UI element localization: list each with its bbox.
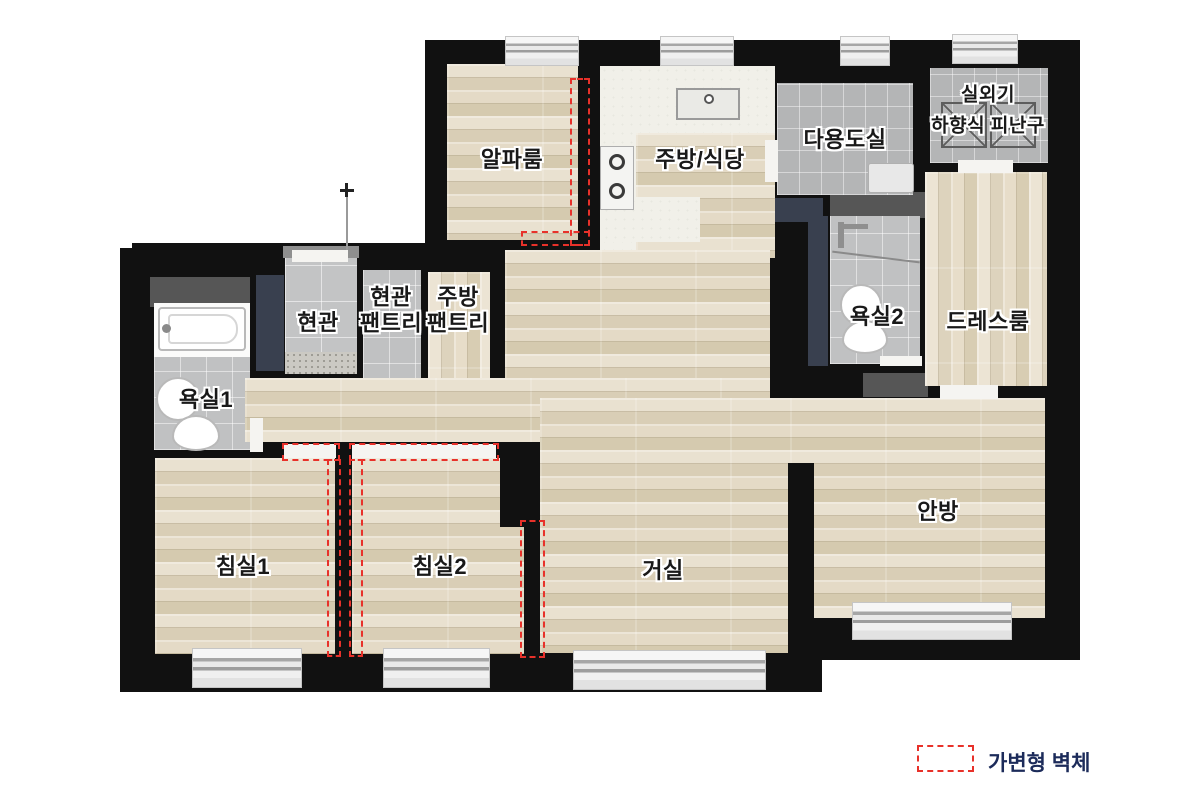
room-kitchen-label: 주방/식당: [655, 147, 745, 173]
wall-left-edge: [120, 248, 156, 692]
bath1-door-opening: [250, 418, 263, 452]
front-door-opening: [292, 250, 348, 262]
burner-icon: [609, 183, 625, 199]
duct-master-top: [863, 373, 928, 397]
window-utility: [840, 36, 890, 66]
kitchen-sink-icon: [676, 88, 740, 120]
room-bedroom1-label: 침실1: [216, 554, 270, 580]
room-escape-hatch-label: 하향식 피난구: [931, 116, 1045, 139]
flexible-wall-bedroom1-side: [327, 459, 341, 657]
floor-plan: 알파룸 주방/식당 다용도실 실외기 하향식 피난구 현관 현관 팬트리 주방 …: [0, 0, 1200, 797]
kitchen-living-floor: [505, 250, 770, 378]
flexible-wall-alpha-vertical: [570, 78, 590, 246]
flexible-wall-bedroom2-right: [520, 520, 545, 658]
legend-flexible-wall-label: 가변형 벽체: [988, 747, 1090, 777]
outdoor-unit-door-opening: [958, 160, 1013, 173]
shoe-cabinet: [256, 275, 284, 371]
stove-icon: [600, 146, 634, 210]
room-bath2-label: 욕실2: [850, 304, 904, 330]
legend-flexible-wall-swatch: [917, 745, 974, 772]
flexible-wall-alpha-horizontal: [521, 231, 590, 246]
burner-icon: [609, 154, 625, 170]
room-living-label: 거실: [642, 558, 683, 584]
room-utility-label: 다용도실: [804, 127, 887, 153]
room-entrance-pantry-label: 현관 팬트리: [360, 285, 422, 338]
wall-living-master: [788, 463, 814, 655]
entry-marker-pole: [346, 196, 348, 250]
room-outdoor-unit-label: 실외기: [961, 85, 1015, 108]
dressroom-door-opening: [940, 385, 998, 399]
room-bedroom2-label: 침실2: [413, 554, 467, 580]
window-bedroom2: [383, 648, 490, 688]
room-master-label: 안방: [917, 499, 958, 525]
washer-icon: [868, 163, 914, 193]
shower-arm-icon: [844, 224, 868, 229]
window-alpha: [505, 36, 579, 66]
window-outdoor-unit: [952, 34, 1018, 64]
room-entrance-label: 현관: [297, 310, 338, 336]
room-dressroom-floor: [925, 172, 1047, 386]
wall-bed2-living-block: [500, 442, 540, 527]
utility-door-opening: [765, 140, 778, 182]
flexible-wall-bedroom2-side: [349, 459, 363, 657]
window-living: [573, 650, 766, 690]
flexible-wall-bedroom2-top: [349, 443, 499, 461]
bath2-door-opening: [880, 356, 922, 366]
duct-above-bath2: [830, 192, 928, 218]
kitchen-faucet-icon: [704, 94, 714, 104]
bathtub-faucet-icon: [162, 324, 171, 333]
cabinet-bath2-left: [808, 216, 828, 366]
room-bath1-label: 욕실1: [179, 387, 233, 413]
window-bedroom1: [192, 648, 302, 688]
bathtub-basin: [168, 314, 238, 344]
room-dressroom-label: 드레스룸: [947, 309, 1030, 335]
window-kitchen: [660, 36, 734, 66]
window-master: [852, 602, 1012, 640]
room-kitchen-pantry-label: 주방 팬트리: [427, 285, 489, 338]
bath1-toilet-icon: [172, 415, 220, 451]
room-living-floor: [540, 398, 790, 653]
room-alpha-label: 알파룸: [481, 147, 543, 173]
entry-marker-cross-icon: [345, 183, 348, 197]
bathtub-icon: [158, 307, 246, 351]
entrance-mat: [285, 352, 357, 374]
